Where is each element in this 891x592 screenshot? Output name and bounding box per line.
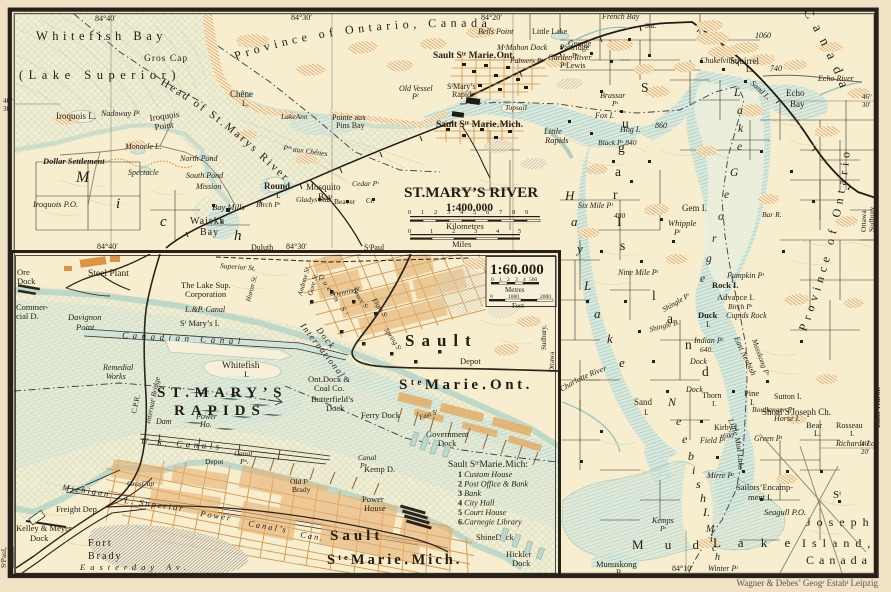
svg-text:Sailors’Encamp-: Sailors’Encamp- <box>736 482 793 492</box>
svg-text:h: h <box>700 491 706 505</box>
svg-text:8: 8 <box>512 209 515 216</box>
svg-text:Ferry Dock: Ferry Dock <box>361 410 401 420</box>
svg-text:h: h <box>715 552 720 563</box>
svg-text:Richards Ldg: Richards Ldg <box>835 439 879 448</box>
svg-text:c: c <box>160 214 167 230</box>
svg-text:I.: I. <box>712 399 716 408</box>
svg-text:Pᵗ: Pᵗ <box>611 99 619 108</box>
svg-text:l: l <box>652 288 656 303</box>
svg-text:Pᵗ: Pᵗ <box>659 524 667 533</box>
svg-text:MᶜMahon Dock: MᶜMahon Dock <box>496 43 548 52</box>
svg-text:Little Lake: Little Lake <box>532 27 568 36</box>
svg-text:Depot: Depot <box>205 457 224 466</box>
svg-text:e: e <box>737 141 742 153</box>
svg-text:ment I.: ment I. <box>748 492 772 502</box>
svg-text:i: i <box>116 196 120 212</box>
svg-text:L.: L. <box>746 65 753 74</box>
svg-text:Iroquois L.: Iroquois L. <box>56 111 96 121</box>
svg-text:Shoal SᵗJoseph Ch.: Shoal SᵗJoseph Ch. <box>762 407 831 417</box>
svg-text:Waiska: Waiska <box>190 216 225 227</box>
svg-text:Echo: Echo <box>786 88 805 98</box>
svg-text:Feet: Feet <box>512 302 524 310</box>
svg-text:I.: I. <box>702 505 710 519</box>
svg-text:Sudbury,: Sudbury, <box>540 325 548 350</box>
svg-text:0: 0 <box>408 228 411 235</box>
svg-text:Gros Cap: Gros Cap <box>144 54 188 64</box>
svg-text:740: 740 <box>770 64 782 73</box>
svg-text:Palmers Pᵗ: Palmers Pᵗ <box>509 56 543 65</box>
svg-text:1: 1 <box>421 209 424 216</box>
svg-text:Fox I.: Fox I. <box>594 111 614 120</box>
svg-text:g: g <box>706 253 712 265</box>
svg-text:I.: I. <box>244 369 249 379</box>
svg-text:Pᵘ.: Pᵘ. <box>239 457 249 466</box>
svg-text:Nine Mile Pᵗ: Nine Mile Pᵗ <box>617 268 659 277</box>
svg-text:L.&P. Canal: L.&P. Canal <box>184 305 226 314</box>
svg-text:a: a <box>594 306 601 321</box>
svg-text:L.: L. <box>814 429 821 438</box>
svg-text:Easterday Av.: Easterday Av. <box>79 562 191 572</box>
svg-text:Brady: Brady <box>88 551 122 562</box>
svg-text:a: a <box>571 214 578 229</box>
svg-text:Chêne: Chêne <box>230 89 253 99</box>
svg-text:46°: 46° <box>862 93 872 101</box>
svg-text:84°10′: 84°10′ <box>672 564 693 573</box>
svg-text:30′: 30′ <box>862 101 871 109</box>
svg-text:Bay Mills: Bay Mills <box>212 202 246 212</box>
svg-text:Ho.: Ho. <box>199 420 212 429</box>
svg-text:I.: I. <box>276 191 281 200</box>
svg-text:I.: I. <box>706 320 711 329</box>
svg-text:Beaver: Beaver <box>334 197 356 206</box>
svg-text:84°20′: 84°20′ <box>481 13 502 22</box>
svg-text:Rapids: Rapids <box>544 135 569 145</box>
svg-text:Rock I.: Rock I. <box>712 280 738 290</box>
svg-text:Winter Pᵗ: Winter Pᵗ <box>708 564 738 573</box>
svg-text:1 Custom House: 1 Custom House <box>458 470 512 479</box>
svg-text:Sta.: Sta. <box>645 21 657 30</box>
svg-text:Remedial: Remedial <box>102 363 134 372</box>
svg-text:Whipple: Whipple <box>668 218 697 228</box>
svg-text:0: 0 <box>408 209 411 216</box>
svg-text:LakeAnn: LakeAnn <box>280 112 308 121</box>
svg-text:Pins Bay: Pins Bay <box>336 121 365 130</box>
svg-text:Indian Pᵗ: Indian Pᵗ <box>693 336 724 345</box>
svg-text:Mirre Pᵗ: Mirre Pᵗ <box>706 471 734 480</box>
svg-text:(Lake Superior): (Lake Superior) <box>19 68 181 82</box>
svg-text:PᵗLewis: PᵗLewis <box>560 61 586 70</box>
svg-text:L: L <box>583 278 591 293</box>
svg-text:House: House <box>364 503 386 513</box>
svg-text:4 City Hall: 4 City Hall <box>458 499 495 508</box>
svg-text:e: e <box>682 432 688 446</box>
svg-text:I.: I. <box>644 408 649 417</box>
svg-text:G: G <box>730 167 739 179</box>
svg-text:d: d <box>702 364 709 379</box>
svg-text:Birch Pᵗ: Birch Pᵗ <box>256 200 281 209</box>
svg-text:k: k <box>738 123 744 135</box>
svg-text:Spectacle: Spectacle <box>128 168 159 177</box>
svg-text:o: o <box>718 211 724 223</box>
svg-text:Sᵗ Mary’s I.: Sᵗ Mary’s I. <box>180 318 220 328</box>
svg-text:Sand: Sand <box>634 397 653 407</box>
svg-text:Island,: Island, <box>802 536 876 550</box>
svg-text:Rapids: Rapids <box>452 90 474 99</box>
svg-text:Dollar Settlement: Dollar Settlement <box>42 156 105 166</box>
svg-text:Dock: Dock <box>689 357 707 366</box>
svg-text:N: N <box>667 395 677 409</box>
svg-text:9: 9 <box>525 209 528 216</box>
svg-text:South Pond: South Pond <box>186 171 224 180</box>
svg-text:I.: I. <box>850 429 854 438</box>
svg-text:b: b <box>688 449 694 463</box>
svg-text:2 Post Office & Bank: 2 Post Office & Bank <box>458 480 528 489</box>
svg-text:L a k e: L a k e <box>713 535 797 550</box>
svg-text:h: h <box>234 228 242 244</box>
svg-text:5 Court House: 5 Court House <box>458 508 507 517</box>
svg-text:H: H <box>564 188 575 203</box>
svg-text:e: e <box>724 189 729 201</box>
svg-text:s: s <box>696 477 701 491</box>
svg-text:Dock: Dock <box>685 385 703 394</box>
svg-text:2: 2 <box>452 228 455 235</box>
svg-text:5: 5 <box>473 209 476 216</box>
svg-text:r: r <box>712 233 717 245</box>
svg-text:2: 2 <box>434 209 437 216</box>
svg-text:Round: Round <box>264 181 290 191</box>
svg-text:Duck: Duck <box>698 310 718 320</box>
svg-text:Dock: Dock <box>512 558 531 568</box>
svg-text:Joseph: Joseph <box>806 515 875 529</box>
svg-text:SᵗᵉMarie․Ont.: SᵗᵉMarie․Ont. <box>399 377 533 393</box>
svg-text:84°40′: 84°40′ <box>95 14 116 23</box>
svg-text:Six Mile Pᵗ: Six Mile Pᵗ <box>578 201 613 210</box>
svg-text:ST.MARY’S RIVER: ST.MARY’S RIVER <box>404 184 539 201</box>
svg-text:3: 3 <box>474 228 477 235</box>
svg-text:M: M <box>75 169 91 186</box>
svg-text:Iroquois P.O.: Iroquois P.O. <box>32 199 78 209</box>
svg-text:North Pond: North Pond <box>179 154 219 163</box>
svg-text:640.: 640. <box>700 345 713 354</box>
svg-text:e: e <box>676 414 682 428</box>
svg-text:Miles: Miles <box>452 239 471 249</box>
svg-text:Point: Point <box>75 322 95 332</box>
svg-text:L: L <box>733 87 740 99</box>
svg-text:6.Carnegie Library: 6.Carnegie Library <box>458 518 522 527</box>
svg-text:Cr.: Cr. <box>366 197 375 205</box>
svg-text:e: e <box>700 273 705 285</box>
svg-text:i: i <box>692 463 695 477</box>
svg-text:a: a <box>615 164 621 179</box>
svg-text:s: s <box>620 238 625 253</box>
svg-text:ShineDock: ShineDock <box>476 532 515 542</box>
svg-text:Ottawa: Ottawa <box>548 351 556 372</box>
svg-text:Bay: Bay <box>200 227 219 238</box>
svg-text:M u d: M u d <box>632 537 708 552</box>
svg-text:Davignon: Davignon <box>67 312 102 322</box>
svg-text:Green Pᵗ: Green Pᵗ <box>754 434 783 443</box>
svg-text:84°40′: 84°40′ <box>97 242 118 251</box>
svg-text:Works: Works <box>106 372 126 381</box>
svg-text:k: k <box>607 331 613 346</box>
svg-text:3 Bank: 3 Bank <box>458 489 481 498</box>
svg-text:3: 3 <box>447 209 450 216</box>
svg-text:cial D.: cial D. <box>16 311 39 321</box>
svg-text:g: g <box>618 140 625 155</box>
svg-text:Gladys Sta: Gladys Sta <box>296 195 329 204</box>
svg-text:Advance I.: Advance I. <box>717 292 754 302</box>
svg-text:Wagner & Debes’ Geogr Estabt L: Wagner & Debes’ Geogr Estabt Leipzig <box>737 578 879 588</box>
svg-text:Cedar Pᵗ: Cedar Pᵗ <box>352 179 379 188</box>
svg-text:Coal Co.: Coal Co. <box>314 383 344 393</box>
svg-text:Sᵗ: Sᵗ <box>833 489 841 501</box>
svg-text:1060: 1060 <box>755 31 771 40</box>
svg-text:Whitefish Bay: Whitefish Bay <box>36 29 167 43</box>
svg-text:Seagull P.O.: Seagull P.O. <box>764 507 806 517</box>
svg-text:a: a <box>737 105 743 117</box>
svg-text:Sault SᵗᵉMarie․Mich:: Sault SᵗᵉMarie․Mich: <box>448 460 528 470</box>
svg-text:e: e <box>619 355 625 370</box>
svg-text:Cupids Rock: Cupids Rock <box>726 311 767 320</box>
svg-text:Pᵗ: Pᵗ <box>572 51 578 60</box>
svg-text:20′: 20′ <box>861 448 870 456</box>
svg-text:480: 480 <box>614 211 626 220</box>
svg-text:Bar R.: Bar R. <box>762 210 782 219</box>
svg-text:Dock: Dock <box>17 276 36 286</box>
svg-text:Dock: Dock <box>326 403 345 413</box>
svg-text:Steel Plant: Steel Plant <box>88 269 129 279</box>
svg-text:Kelley & Meyer: Kelley & Meyer <box>16 523 72 533</box>
svg-text:SᵗᵉMarie․Mich.: SᵗᵉMarie․Mich. <box>327 552 462 568</box>
svg-text:n: n <box>685 337 692 352</box>
svg-text:Sault: Sault <box>405 331 478 350</box>
svg-text:Sault Sᵗᵉ Marie․Ont.: Sault Sᵗᵉ Marie․Ont. <box>433 51 515 61</box>
svg-text:860: 860 <box>655 121 667 130</box>
svg-text:5: 5 <box>518 228 521 235</box>
svg-text:84°30′: 84°30′ <box>286 242 307 251</box>
svg-text:Corporation: Corporation <box>185 289 227 299</box>
svg-text:Bells Point: Bells Point <box>478 27 514 36</box>
svg-text:r: r <box>613 187 618 202</box>
svg-text:Mission: Mission <box>195 182 221 191</box>
svg-text:Birch Pᵗ: Birch Pᵗ <box>728 302 753 311</box>
svg-text:Chukelville: Chukelville <box>700 56 737 65</box>
svg-text:Depot: Depot <box>460 356 481 366</box>
svg-text:L.: L. <box>242 99 249 108</box>
svg-text:Dock: Dock <box>30 533 49 543</box>
svg-text:Gem I.: Gem I. <box>682 203 707 213</box>
svg-text:Bay: Bay <box>790 99 805 109</box>
svg-text:Fort: Fort <box>88 538 113 549</box>
svg-text:Kemp D.: Kemp D. <box>364 464 395 474</box>
svg-text:Dam: Dam <box>155 417 172 426</box>
svg-text:Metres: Metres <box>505 286 525 294</box>
svg-text:S: S <box>641 80 649 95</box>
svg-text:Sault Sᵗᵉ Marie․Mich.: Sault Sᵗᵉ Marie․Mich. <box>436 120 523 130</box>
svg-text:Pine: Pine <box>744 388 759 398</box>
svg-text:u: u <box>622 116 629 131</box>
svg-text:Pumpkin Pᵗ: Pumpkin Pᵗ <box>726 271 764 280</box>
svg-text:Topsail: Topsail <box>505 103 527 112</box>
svg-text:Freight Dep.: Freight Dep. <box>56 504 99 514</box>
svg-text:1: 1 <box>430 228 433 235</box>
svg-text:Nadoway Pᵗ: Nadoway Pᵗ <box>100 109 140 118</box>
svg-text:84°30′: 84°30′ <box>291 13 312 22</box>
svg-text:Pᵗ: Pᵗ <box>673 228 681 237</box>
svg-text:ST.MARY’S: ST.MARY’S <box>157 385 287 401</box>
svg-text:Field Pᵗ: Field Pᵗ <box>699 436 726 445</box>
svg-text:y: y <box>575 241 583 256</box>
svg-text:1:60.000: 1:60.000 <box>490 262 544 278</box>
svg-text:Sault: Sault <box>330 528 383 544</box>
svg-text:Whitefish: Whitefish <box>222 360 260 371</box>
svg-text:Sutton I.: Sutton I. <box>774 392 802 401</box>
svg-text:Brady: Brady <box>292 485 311 494</box>
svg-text:Pᵗ: Pᵗ <box>411 92 419 101</box>
svg-text:Mosquito: Mosquito <box>306 182 341 192</box>
svg-text:GrosCap: GrosCap <box>127 479 154 488</box>
svg-text:Monocle L.: Monocle L. <box>124 142 161 151</box>
svg-text:RAPIDS: RAPIDS <box>174 403 266 419</box>
